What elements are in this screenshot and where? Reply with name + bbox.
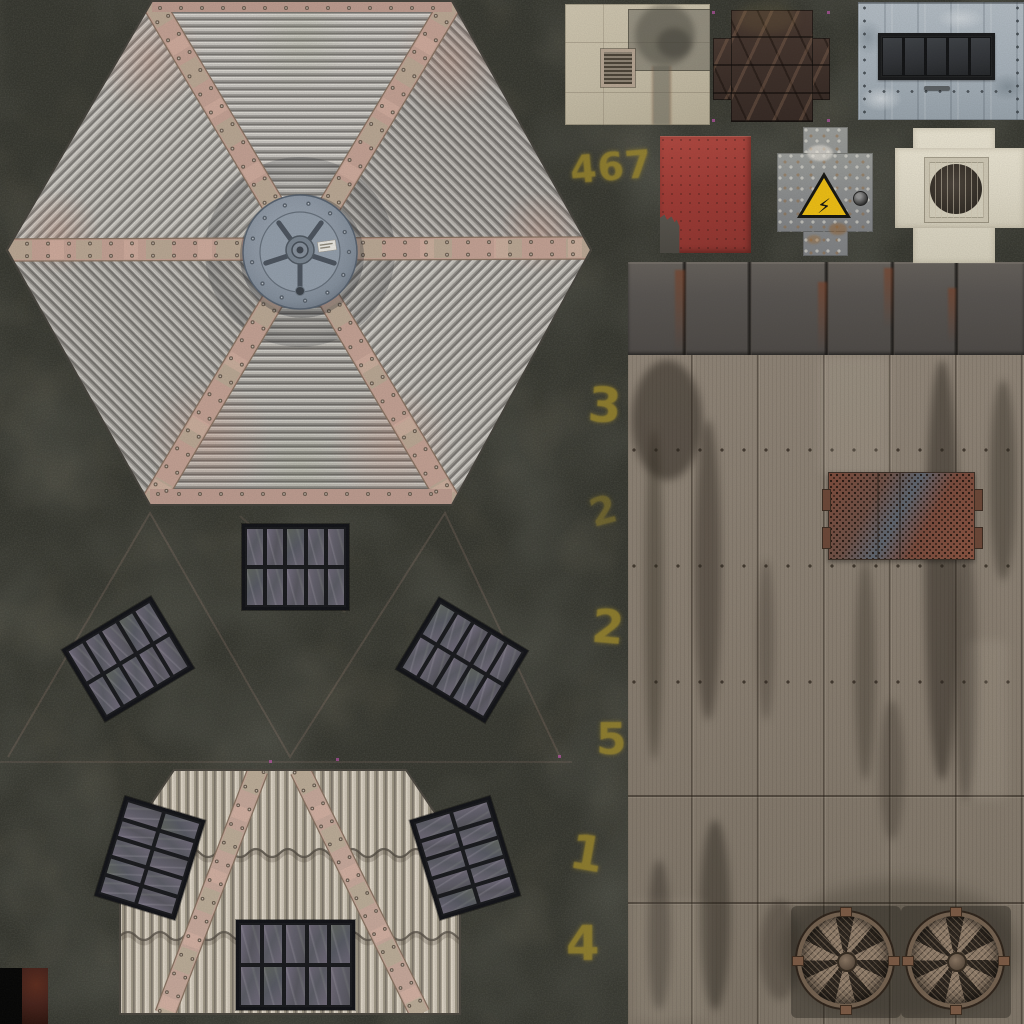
rust-drip	[818, 282, 827, 352]
tile-blue-panel	[858, 2, 1024, 120]
fan-mount-tab	[998, 956, 1010, 966]
hexagonal-roof	[0, 0, 600, 512]
corner-swatch-maroon	[22, 968, 48, 1024]
mesh-seam	[899, 473, 901, 559]
tile-red-metal	[660, 136, 751, 253]
painted-number-4: 4	[566, 920, 599, 968]
fan-mount-tab	[902, 956, 914, 966]
painted-number-467: 467	[569, 144, 654, 189]
solar-panel-center	[242, 524, 349, 610]
rivet-column	[1016, 6, 1019, 114]
wall-top-band	[628, 262, 1024, 355]
rust-mesh-hatch	[828, 472, 975, 560]
handle-slot	[924, 86, 950, 90]
painted-number-5: 5	[596, 718, 627, 762]
painted-number-2: 2	[590, 603, 626, 652]
bolt-knob	[853, 191, 868, 206]
mesh-seam	[877, 473, 879, 559]
rivet-column	[863, 6, 866, 114]
tile-concrete-vent	[565, 4, 710, 125]
fan-housing	[925, 158, 988, 222]
roof-hub	[240, 194, 364, 318]
fan-mount-tab	[950, 1005, 962, 1015]
mesh-hinge	[974, 527, 983, 549]
hub-drain-hole	[296, 287, 305, 296]
painted-number-3: 3	[586, 381, 623, 431]
rust-drip	[675, 270, 685, 354]
tile-warning-cross: ⚡	[777, 127, 873, 256]
fan-grille-bars	[929, 162, 984, 218]
fan-mount-tab	[950, 907, 962, 917]
wall-band-groove	[747, 262, 752, 355]
mesh-hinge	[822, 527, 831, 549]
fan-mount-tab	[888, 956, 900, 966]
faint-paint-smudge	[735, 3, 797, 33]
stain-drip	[653, 66, 670, 125]
fan-mount-tab	[840, 907, 852, 917]
mesh-hinge	[974, 489, 983, 511]
wood-plank-wall	[628, 355, 1024, 1024]
rivet-row	[868, 90, 1014, 93]
rust-drip	[948, 288, 956, 343]
window-band	[878, 33, 995, 80]
exhaust-fan-left	[797, 912, 893, 1008]
texture-atlas-stage: ⚡ 467 3 2 2 5 1 4	[0, 0, 1024, 1024]
mesh-hinge	[822, 489, 831, 511]
fan-mount-tab	[792, 956, 804, 966]
lightning-bolt-icon: ⚡	[817, 196, 831, 216]
fan-mount-tab	[840, 1005, 852, 1015]
tile-cream-fan	[895, 128, 1024, 263]
exhaust-fan-right	[907, 912, 1003, 1008]
vent-grille-icon	[601, 49, 635, 87]
corner-swatch-black	[0, 968, 22, 1024]
rust-drip	[884, 268, 893, 328]
hub-label-sticker	[317, 240, 336, 252]
solar-panel-bottom	[236, 920, 355, 1010]
peeled-paint-patch	[660, 189, 704, 253]
